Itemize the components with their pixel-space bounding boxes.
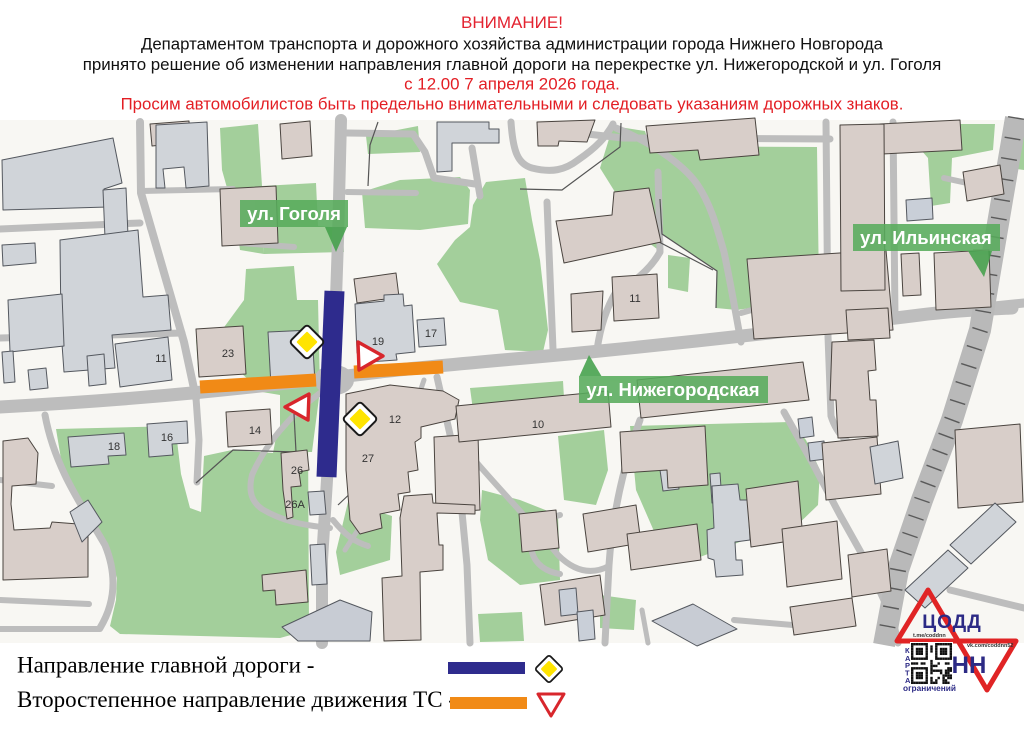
- svg-text:27: 27: [362, 453, 374, 465]
- svg-text:16: 16: [161, 432, 173, 444]
- svg-text:Второстепенное направление дви: Второстепенное направление движения ТС -: [17, 687, 456, 712]
- svg-text:ул. Ильинская: ул. Ильинская: [860, 227, 992, 248]
- svg-text:26А: 26А: [285, 499, 305, 511]
- svg-text:с 12.00 7 апреля 2026 года.: с 12.00 7 апреля 2026 года.: [404, 75, 620, 94]
- svg-text:НН: НН: [952, 652, 987, 679]
- svg-text:23: 23: [222, 348, 234, 360]
- svg-text:18: 18: [108, 441, 120, 453]
- svg-text:10: 10: [532, 419, 544, 431]
- svg-text:принято решение об изменении н: принято решение об изменении направления…: [83, 55, 942, 74]
- svg-text:ВНИМАНИЕ!: ВНИМАНИЕ!: [461, 13, 563, 32]
- svg-text:14: 14: [249, 425, 261, 437]
- svg-text:Направление главной дороги -: Направление главной дороги -: [17, 653, 314, 678]
- svg-text:11: 11: [155, 353, 166, 365]
- svg-text:12: 12: [389, 414, 401, 426]
- svg-text:vk.com/coddnn52: vk.com/coddnn52: [967, 643, 1013, 649]
- svg-text:ул. Нижегородская: ул. Нижегородская: [586, 379, 759, 400]
- svg-text:ограничений: ограничений: [903, 683, 956, 693]
- svg-text:t.me/coddnn: t.me/coddnn: [913, 633, 946, 639]
- svg-text:ЦОДД: ЦОДД: [922, 612, 981, 633]
- svg-text:Просим автомобилистов быть пре: Просим автомобилистов быть предельно вни…: [121, 95, 904, 114]
- svg-text:26: 26: [291, 465, 303, 477]
- svg-text:ул. Гоголя: ул. Гоголя: [247, 203, 341, 224]
- svg-text:Департаментом транспорта и дор: Департаментом транспорта и дорожного хоз…: [141, 35, 884, 54]
- svg-text:17: 17: [425, 328, 437, 340]
- svg-text:19: 19: [372, 336, 384, 348]
- svg-text:11: 11: [629, 293, 640, 305]
